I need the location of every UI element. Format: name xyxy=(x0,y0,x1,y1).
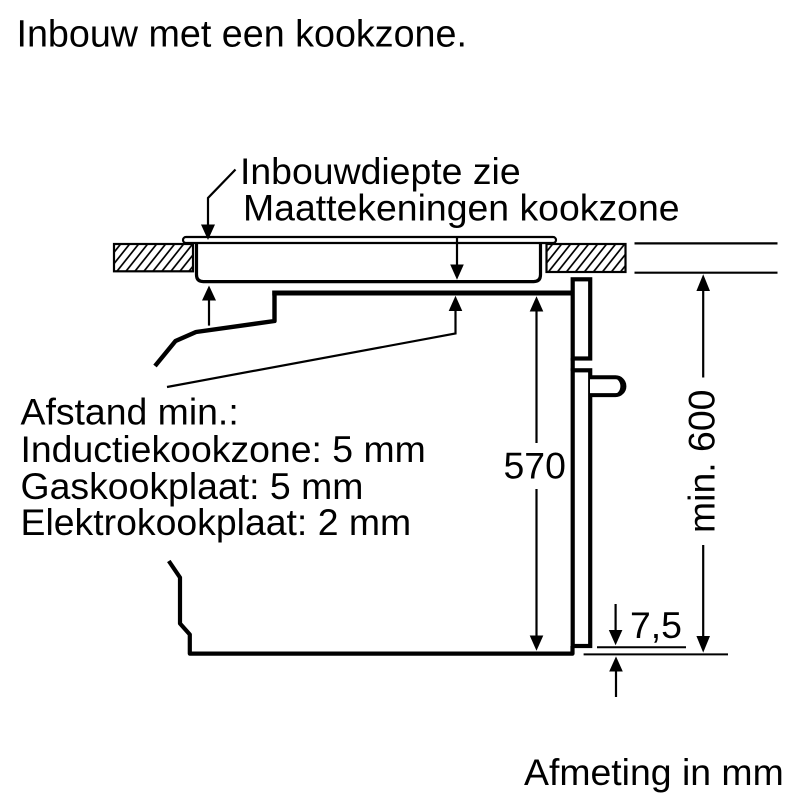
svg-text:min. 600: min. 600 xyxy=(681,390,723,533)
svg-text:Inductiekookzone: 5 mm: Inductiekookzone: 5 mm xyxy=(21,428,426,470)
svg-text:7,5: 7,5 xyxy=(630,604,682,646)
svg-text:Elektrokookplaat: 2 mm: Elektrokookplaat: 2 mm xyxy=(21,501,412,543)
svg-text:Inbouw met een kookzone.: Inbouw met een kookzone. xyxy=(17,13,467,55)
svg-text:Afstand min.:: Afstand min.: xyxy=(21,391,239,433)
svg-text:Afmeting in mm: Afmeting in mm xyxy=(524,751,784,793)
svg-text:570: 570 xyxy=(504,445,566,487)
svg-text:Maattekeningen kookzone: Maattekeningen kookzone xyxy=(243,187,680,229)
